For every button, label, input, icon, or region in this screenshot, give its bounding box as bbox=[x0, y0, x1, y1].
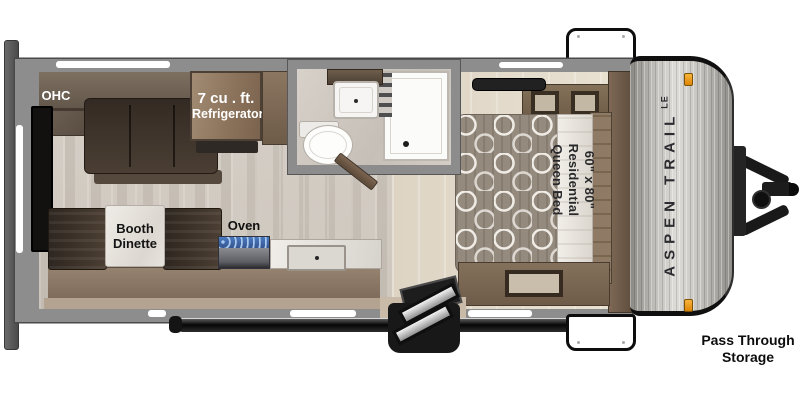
front-cap: ASPEN TRAILLE bbox=[630, 56, 734, 316]
refrigerator-base bbox=[196, 141, 258, 153]
kitchen-sink bbox=[287, 245, 346, 271]
clearance-light-icon bbox=[684, 299, 693, 312]
tongue-jack-wheel-icon bbox=[752, 190, 771, 209]
brand-badge: LE bbox=[660, 95, 670, 109]
pass-through-storage-label: Pass Through Storage bbox=[694, 332, 800, 366]
clearance-light-icon bbox=[684, 73, 693, 86]
shower bbox=[383, 71, 449, 161]
pass-through-door-bottom bbox=[566, 314, 636, 351]
floorplan-canvas: OHC 7 cu . ft. Refrigerator Booth Dinett… bbox=[0, 0, 800, 400]
refrigerator-label-line2: Refrigerator bbox=[192, 107, 260, 122]
window bbox=[499, 62, 563, 68]
pass-through-label-line2: Storage bbox=[694, 349, 800, 366]
booth-label-line1: Booth bbox=[106, 221, 164, 236]
stove-burners-icon bbox=[219, 237, 269, 248]
window bbox=[468, 310, 532, 317]
awning-rail-endcap bbox=[169, 316, 182, 333]
refrigerator: 7 cu . ft. Refrigerator bbox=[190, 71, 262, 141]
bed-label-line1: 60" x 80" bbox=[581, 105, 597, 255]
dresser-panel bbox=[505, 270, 563, 297]
a-frame-bar-lower bbox=[739, 204, 791, 237]
window bbox=[148, 310, 166, 317]
dinette-bench-left bbox=[48, 208, 107, 270]
floor-edge-strip bbox=[44, 298, 382, 309]
hitch-coupler-tip bbox=[789, 183, 799, 196]
bathroom-sink bbox=[333, 81, 379, 119]
refrigerator-label-line1: 7 cu . ft. bbox=[192, 90, 260, 107]
oven-body bbox=[219, 248, 269, 268]
kitchen-cabinet-band bbox=[48, 266, 380, 301]
brand-logo: ASPEN TRAILLE bbox=[660, 95, 679, 277]
ceiling-vent bbox=[472, 78, 546, 91]
ohc-label: OHC bbox=[30, 88, 82, 103]
range-oven bbox=[218, 236, 270, 269]
bed-label-line3: Queen Bed bbox=[549, 105, 565, 255]
brand-name: ASPEN TRAIL bbox=[662, 111, 679, 277]
window bbox=[56, 61, 170, 68]
window bbox=[290, 310, 356, 317]
shower-drain-icon bbox=[403, 141, 409, 147]
booth-dinette-table: Booth Dinette bbox=[105, 205, 165, 267]
bathroom bbox=[288, 60, 460, 174]
awning-rail bbox=[176, 318, 574, 332]
pass-through-label-line1: Pass Through bbox=[694, 332, 800, 349]
oven-label: Oven bbox=[214, 218, 274, 233]
queen-bed-label: 60" x 80" Residential Queen Bed bbox=[543, 105, 603, 255]
booth-label-line2: Dinette bbox=[106, 236, 164, 251]
bathroom-sink-drain-icon bbox=[354, 99, 358, 103]
bed-foot-dresser bbox=[458, 262, 610, 306]
bed-label-line2: Residential bbox=[565, 105, 581, 255]
sink-drain-icon bbox=[315, 256, 319, 260]
rear-window bbox=[16, 125, 23, 253]
